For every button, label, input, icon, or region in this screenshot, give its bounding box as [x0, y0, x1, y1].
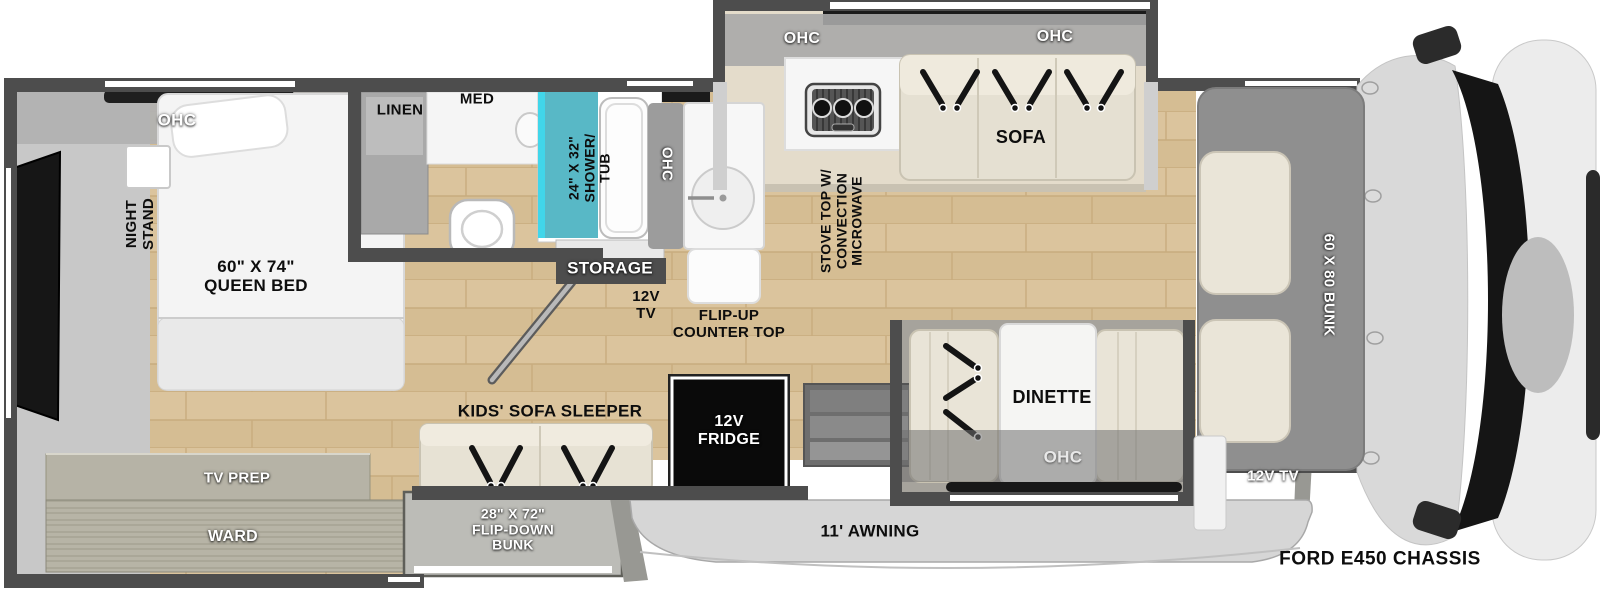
- night-stand: [126, 146, 170, 188]
- dinette-slideout: [902, 324, 1184, 492]
- cab-seat-bottom: [1200, 320, 1290, 442]
- side-mirror-top: [1410, 24, 1463, 67]
- floorplan-canvas: OHC NIGHT STAND 60" X 74" QUEEN BED TV P…: [0, 0, 1600, 601]
- tub: [600, 98, 648, 238]
- shower-glass-edge: [538, 92, 545, 238]
- cabinet-ohc-band: [648, 103, 684, 249]
- sofa: [900, 55, 1135, 180]
- cab: [1194, 24, 1600, 560]
- shower-pan: [544, 92, 598, 238]
- tv-prep-counter: [46, 454, 370, 500]
- dinette-ohc-band: [902, 430, 1183, 482]
- bed-blanket: [158, 318, 404, 390]
- floorplan-drawing: [0, 0, 1600, 601]
- flip-up-counter-leaf: [688, 249, 760, 303]
- cab-roof-patch: [1502, 237, 1574, 393]
- stove-top-icon: [806, 84, 880, 136]
- cab-tv-cabinet: [1194, 436, 1226, 530]
- linen-closet-top: [366, 97, 423, 155]
- front-grille: [1586, 170, 1600, 440]
- dinette-topper: [946, 482, 1182, 492]
- flip-down-bunk: [404, 492, 622, 576]
- fridge: [672, 378, 786, 492]
- bedroom-tv: [12, 152, 60, 420]
- cab-seat-top: [1200, 152, 1290, 294]
- wardrobe: [46, 500, 412, 572]
- cab-hood: [1357, 55, 1468, 544]
